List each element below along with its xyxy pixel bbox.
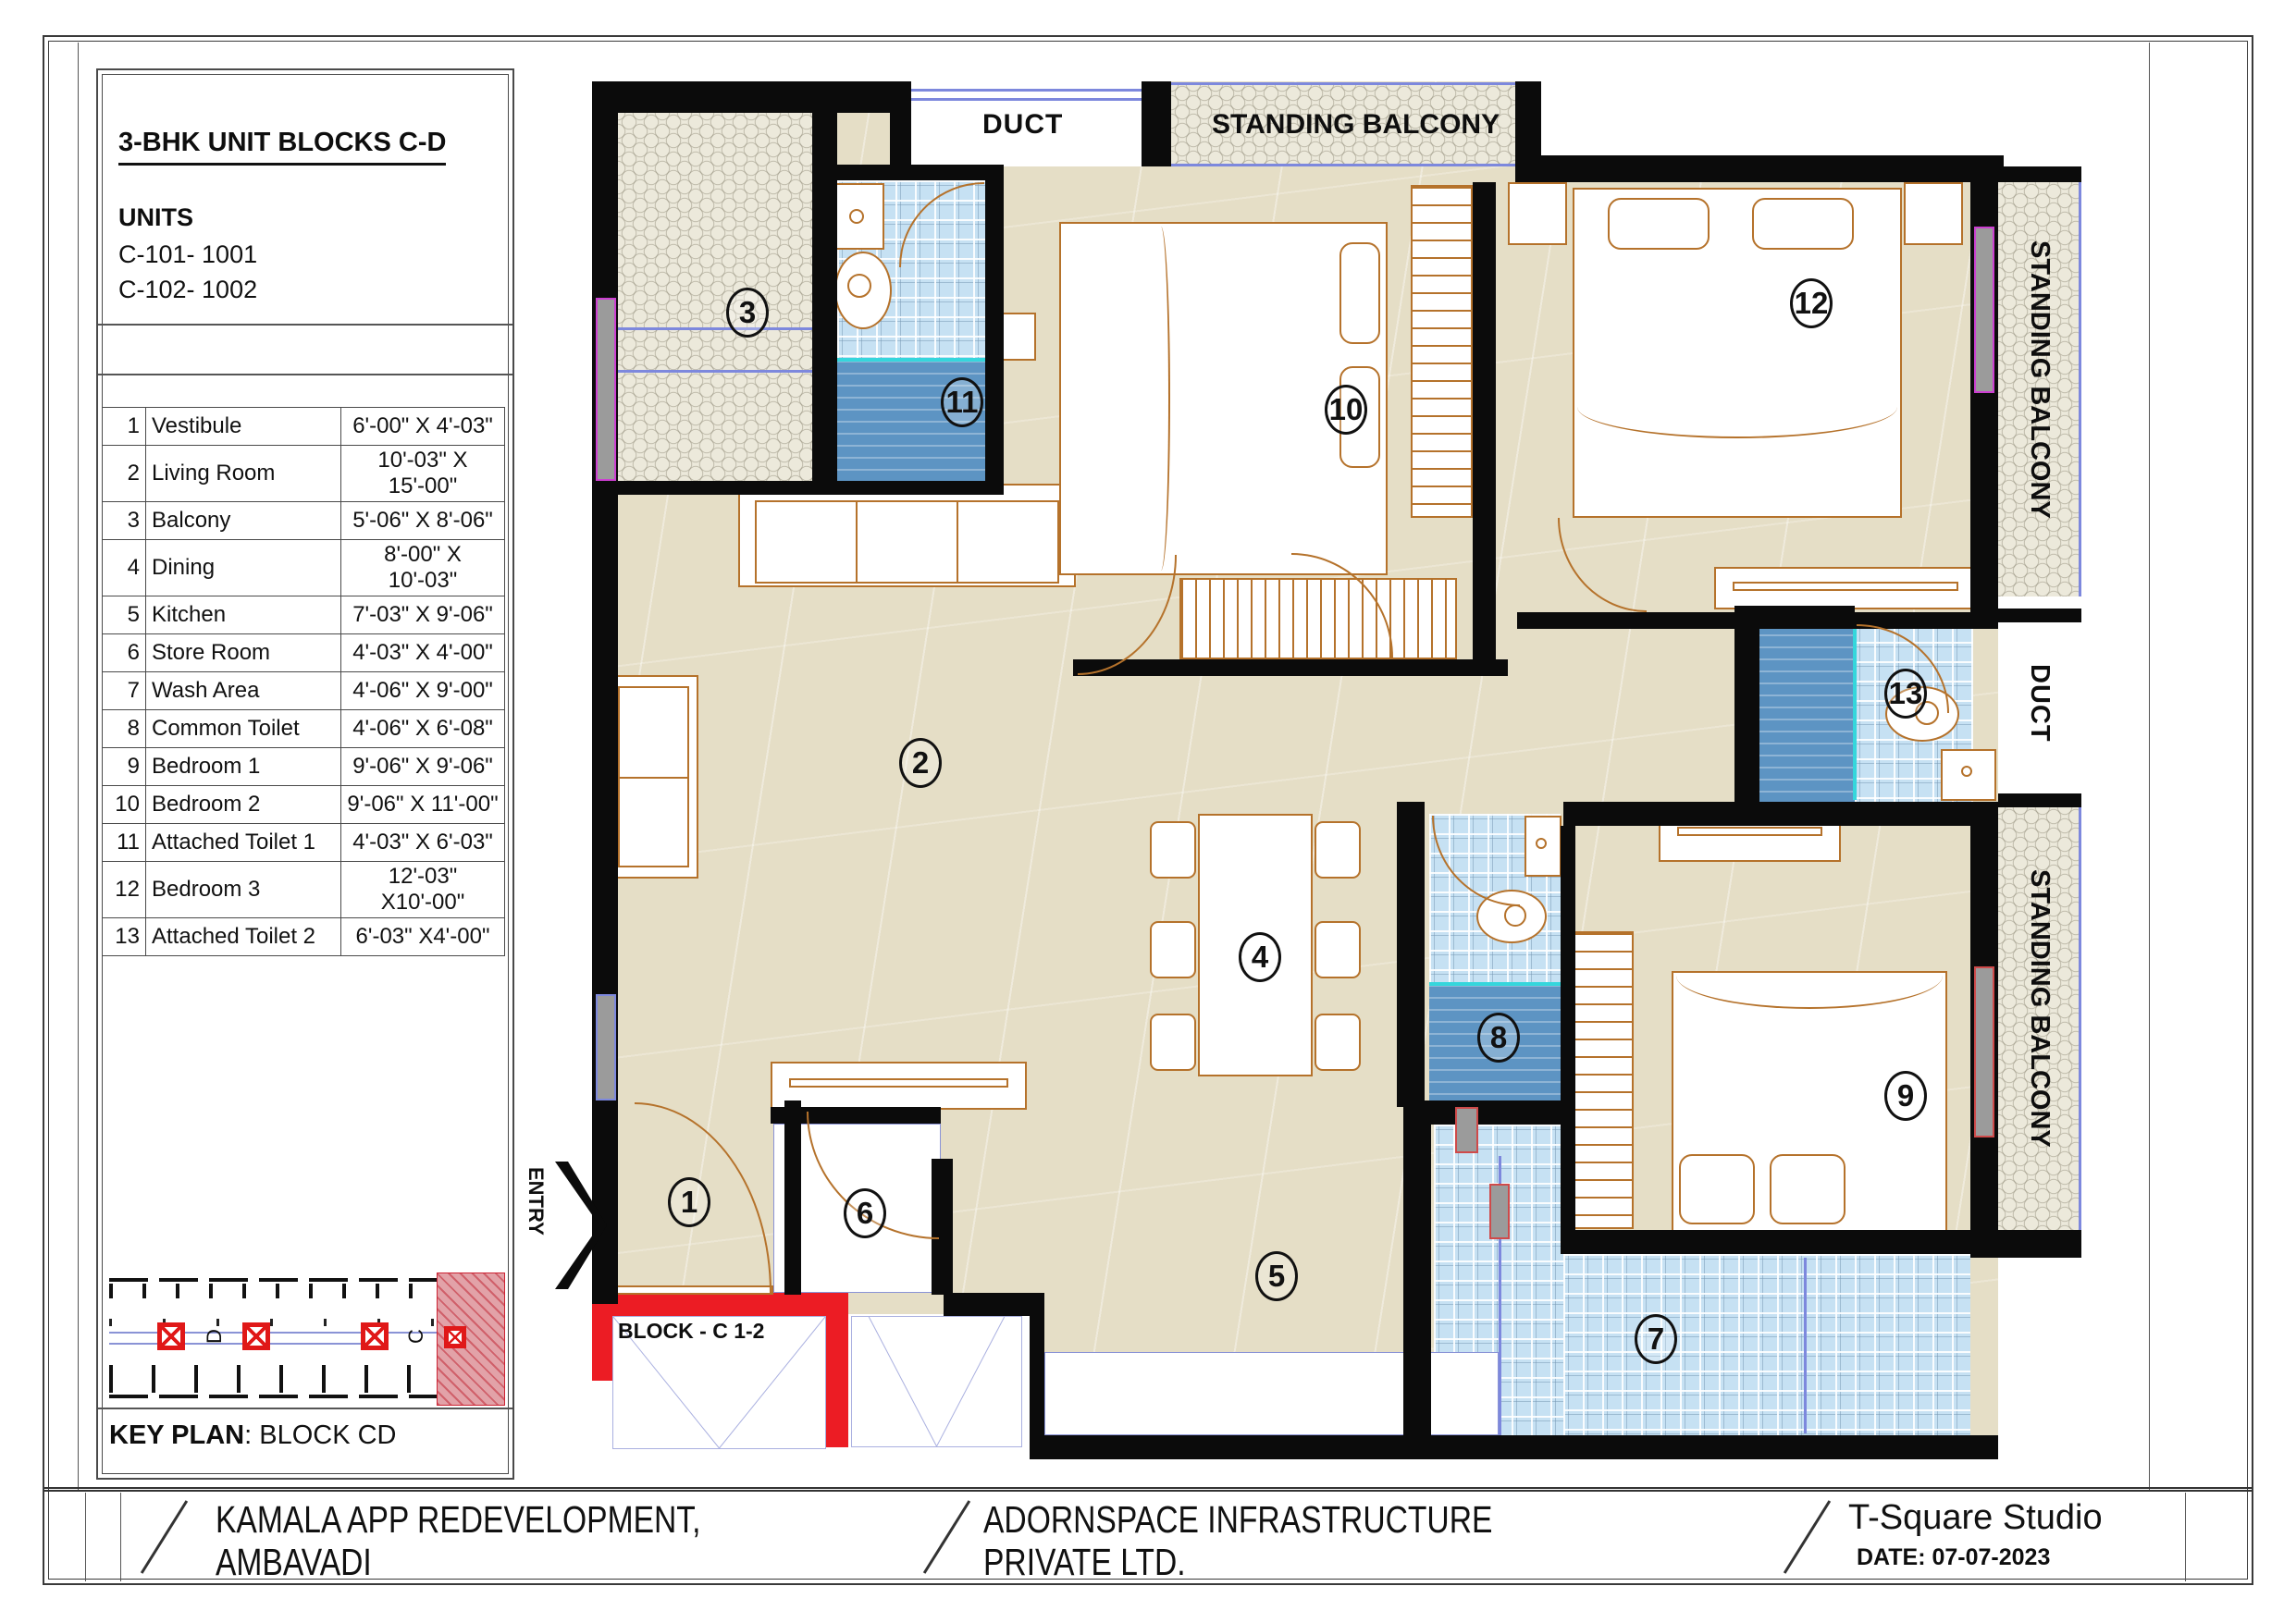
room-table-row: 9Bedroom 19'-06" X 9'-06": [103, 748, 505, 786]
room-table-row: 6Store Room4'-03" X 4'-00": [103, 634, 505, 672]
room-table-row: 2Living Room10'-03" X 15'-00": [103, 446, 505, 502]
room-table-row: 13Attached Toilet 26'-03" X4'-00": [103, 918, 505, 956]
wall: [1734, 606, 1855, 622]
wall: [837, 165, 985, 180]
drawing-date: DATE: 07-07-2023: [1857, 1544, 2050, 1571]
key-plan-caption-value: : BLOCK CD: [244, 1420, 396, 1450]
window-line: [1171, 82, 1515, 85]
room-table-row: 1Vestibule6'-00" X 4'-03": [103, 408, 505, 446]
entry-chevron: [551, 1156, 607, 1295]
key-plan-drawing: D C: [104, 1271, 507, 1408]
room-table-cell-name: Dining: [146, 540, 341, 596]
side-unit-shelves: [618, 686, 689, 867]
key-plan-separator: [98, 1408, 512, 1409]
key-plan-lift-core: [157, 1322, 185, 1350]
wall: [592, 81, 618, 1304]
room-table-cell-no: 13: [103, 918, 146, 956]
standing-balcony-right-lower-label: STANDING BALCONY: [2024, 869, 2055, 1148]
wall: [618, 481, 1004, 495]
dresser-shelf: [1677, 827, 1822, 836]
wall: [784, 1100, 801, 1295]
room-table-cell-name: Bedroom 3: [146, 862, 341, 918]
entry-porch: [826, 1293, 848, 1447]
room-number-badge: 6: [844, 1188, 886, 1238]
room-table-cell-no: 2: [103, 446, 146, 502]
wash-area-floor: [1563, 1254, 1970, 1435]
window-line: [618, 327, 812, 330]
window: [1455, 1107, 1478, 1153]
room-table-row: 4Dining8'-00" X 10'-03": [103, 540, 505, 596]
room-table-cell-name: Vestibule: [146, 408, 341, 446]
wall: [812, 113, 837, 495]
tv-shelf: [789, 1078, 1008, 1088]
room-table-cell-no: 6: [103, 634, 146, 672]
key-plan-caption-label: KEY PLAN: [109, 1420, 244, 1450]
wall: [1998, 793, 2081, 807]
room-table-cell-name: Attached Toilet 2: [146, 918, 341, 956]
wall: [1397, 802, 1425, 1107]
room-table-cell-name: Common Toilet: [146, 710, 341, 748]
wardrobe: [1411, 185, 1473, 518]
window: [1974, 227, 1994, 393]
sheet-title: 3-BHK UNIT BLOCKS C-D: [118, 128, 446, 166]
sofa-cushions: [755, 500, 1059, 584]
room-table-cell-no: 10: [103, 786, 146, 824]
room-table-cell-no: 5: [103, 596, 146, 634]
room-table-cell-no: 11: [103, 824, 146, 862]
window: [596, 298, 616, 481]
entry-porch: [592, 1293, 848, 1316]
key-plan-lift-core: [444, 1326, 466, 1348]
room-number-badge: 9: [1884, 1071, 1927, 1121]
balcony-floor: [618, 113, 812, 481]
shower-edge: [837, 358, 985, 362]
room-table-cell-size: 4'-03" X 6'-03": [341, 824, 505, 862]
margin-line-left: [78, 43, 79, 1491]
room-table-cell-name: Attached Toilet 1: [146, 824, 341, 862]
key-plan-block-d-label: D: [203, 1329, 227, 1344]
wash-divider: [1804, 1258, 1807, 1433]
footer-vline: [2185, 1493, 2186, 1581]
window: [596, 994, 616, 1100]
room-number-badge: 12: [1790, 278, 1833, 328]
panel-divider: [98, 324, 512, 326]
block-label: BLOCK - C 1-2: [618, 1319, 764, 1344]
wall: [1563, 802, 1998, 826]
room-table-cell-size: 4'-06" X 9'-00": [341, 672, 505, 710]
wall: [592, 81, 911, 113]
room-table-row: 3Balcony5'-06" X 8'-06": [103, 502, 505, 540]
room-table: 1Vestibule6'-00" X 4'-03"2Living Room10'…: [102, 407, 505, 956]
footer-vline: [120, 1493, 121, 1581]
project-name-line1: KAMALA APP REDEVELOPMENT,: [216, 1498, 700, 1542]
window-line: [1171, 164, 1515, 166]
room-table-cell-size: 10'-03" X 15'-00": [341, 446, 505, 502]
room-table-cell-no: 7: [103, 672, 146, 710]
room-table-row: 11Attached Toilet 14'-03" X 6'-03": [103, 824, 505, 862]
room-table-cell-size: 9'-06" X 11'-00": [341, 786, 505, 824]
key-plan-lift-core: [361, 1322, 389, 1350]
company-name-line1: ADORNSPACE INFRASTRUCTURE: [983, 1498, 1492, 1542]
room-table-cell-size: 9'-06" X 9'-06": [341, 748, 505, 786]
exterior-patch: [1998, 43, 2149, 166]
drawing-sheet: 3-BHK UNIT BLOCKS C-D UNITS C-101- 1001 …: [0, 0, 2296, 1623]
room-table-cell-no: 12: [103, 862, 146, 918]
unit-number-1: C-101- 1001: [118, 240, 257, 269]
window-line: [911, 98, 1142, 101]
room-table-cell-size: 6'-00" X 4'-03": [341, 408, 505, 446]
standing-balcony-right-upper-label: STANDING BALCONY: [2024, 240, 2055, 519]
wall: [1998, 166, 2081, 182]
room-table-cell-name: Kitchen: [146, 596, 341, 634]
wall: [890, 81, 911, 166]
basin-drain: [1961, 766, 1972, 777]
room-table-cell-no: 4: [103, 540, 146, 596]
wall: [1030, 1435, 1998, 1459]
room-table-cell-name: Balcony: [146, 502, 341, 540]
wall: [985, 165, 1004, 495]
wall: [1073, 659, 1508, 676]
room-table-cell-name: Bedroom 1: [146, 748, 341, 786]
company-name-line2: PRIVATE LTD.: [983, 1541, 1186, 1584]
dining-chair: [1315, 1014, 1361, 1071]
room-table-cell-size: 4'-06" X 6'-08": [341, 710, 505, 748]
key-plan-caption: KEY PLAN: BLOCK CD: [109, 1420, 396, 1451]
room-table-cell-size: 7'-03" X 9'-06": [341, 596, 505, 634]
duct-right-label: DUCT: [2024, 664, 2055, 743]
room-table-cell-name: Store Room: [146, 634, 341, 672]
dining-chair: [1150, 1014, 1196, 1071]
room-number-badge: 11: [941, 377, 983, 427]
room-number-badge: 8: [1477, 1013, 1520, 1063]
cistern-button: [849, 209, 864, 224]
window-line: [2079, 807, 2081, 1230]
bed-pillow: [1339, 242, 1380, 344]
room-table-cell-size: 12'-03" X10'-00": [341, 862, 505, 918]
bed-pillow: [1752, 198, 1854, 250]
window-line: [911, 89, 1142, 92]
entry-label: ENTRY: [524, 1167, 548, 1236]
room-table-cell-name: Wash Area: [146, 672, 341, 710]
key-plan-block-c-label: C: [404, 1329, 428, 1344]
wall: [1425, 1100, 1563, 1125]
window-line: [2079, 182, 2081, 596]
bedside-table: [1508, 182, 1567, 245]
bed-pillow: [1770, 1154, 1845, 1224]
room-number-badge: 5: [1255, 1251, 1298, 1301]
room-number-badge: 7: [1635, 1314, 1677, 1364]
wall: [1563, 1230, 1998, 1254]
room-table-cell-no: 9: [103, 748, 146, 786]
room-number-badge: 10: [1325, 385, 1367, 435]
wall: [1541, 155, 2004, 182]
wall: [1403, 1100, 1431, 1459]
dining-chair: [1315, 821, 1361, 879]
bed-pillow: [1679, 1154, 1755, 1224]
room-table-cell-name: Living Room: [146, 446, 341, 502]
room-table-cell-size: 5'-06" X 8'-06": [341, 502, 505, 540]
room-table-cell-no: 1: [103, 408, 146, 446]
room-table-row: 8Common Toilet4'-06" X 6'-08": [103, 710, 505, 748]
footer-top-rule: [44, 1487, 2252, 1492]
wall: [1734, 606, 1759, 807]
room-number-badge: 13: [1884, 669, 1927, 719]
room-number-badge: 1: [668, 1177, 710, 1227]
lift-shaft: [851, 1316, 1022, 1447]
shower-edge: [1429, 982, 1561, 986]
dining-chair: [1150, 821, 1196, 879]
wall: [1030, 1293, 1044, 1459]
bedside-table: [1904, 182, 1963, 245]
basin-drain: [1536, 838, 1547, 849]
wall: [1142, 81, 1171, 166]
toilet-bowl-inner: [847, 274, 871, 298]
wall: [944, 1293, 1030, 1316]
wall: [1561, 826, 1575, 1254]
toilet-bowl-inner: [1504, 904, 1526, 927]
project-name-line2: AMBAVADI: [216, 1541, 372, 1584]
room-table-body: 1Vestibule6'-00" X 4'-03"2Living Room10'…: [103, 408, 505, 956]
panel-divider: [98, 374, 512, 375]
room-number-badge: 3: [726, 288, 769, 338]
room-table-row: 5Kitchen7'-03" X 9'-06": [103, 596, 505, 634]
room-table-cell-name: Bedroom 2: [146, 786, 341, 824]
room-table-cell-size: 4'-03" X 4'-00": [341, 634, 505, 672]
toilet2-shower: [1759, 622, 1855, 802]
wall: [1515, 81, 1541, 182]
room-table-cell-no: 8: [103, 710, 146, 748]
room-table-cell-no: 3: [103, 502, 146, 540]
margin-line-right: [2149, 43, 2150, 1491]
dining-chair: [1150, 921, 1196, 978]
units-heading: UNITS: [118, 203, 193, 232]
wall: [1998, 609, 2081, 622]
dresser-shelf: [1733, 582, 1958, 591]
bed-blanket-line: [1133, 227, 1170, 571]
dining-chair: [1315, 921, 1361, 978]
footer-vline: [85, 1493, 86, 1581]
entry-porch: [592, 1293, 612, 1381]
window: [1489, 1184, 1510, 1239]
window-line: [618, 370, 812, 373]
room-table-row: 12Bedroom 312'-03" X10'-00": [103, 862, 505, 918]
room-number-badge: 2: [899, 738, 942, 788]
wardrobe: [1573, 931, 1634, 1229]
room-table-row: 7Wash Area4'-06" X 9'-00": [103, 672, 505, 710]
studio-name: T-Square Studio: [1848, 1498, 2103, 1538]
bed-pillow: [1608, 198, 1710, 250]
room-table-row: 10Bedroom 29'-06" X 11'-00": [103, 786, 505, 824]
duct-top-label: DUCT: [982, 109, 1063, 141]
wall: [1473, 182, 1496, 676]
standing-balcony-top-label: STANDING BALCONY: [1212, 109, 1500, 141]
window: [1974, 966, 1994, 1137]
unit-number-2: C-102- 1002: [118, 276, 257, 304]
room-number-badge: 4: [1239, 932, 1281, 982]
room-table-cell-size: 8'-00" X 10'-03": [341, 540, 505, 596]
key-plan-lift-core: [242, 1322, 270, 1350]
exterior-patch: [1541, 81, 1998, 155]
room-table-cell-size: 6'-03" X4'-00": [341, 918, 505, 956]
